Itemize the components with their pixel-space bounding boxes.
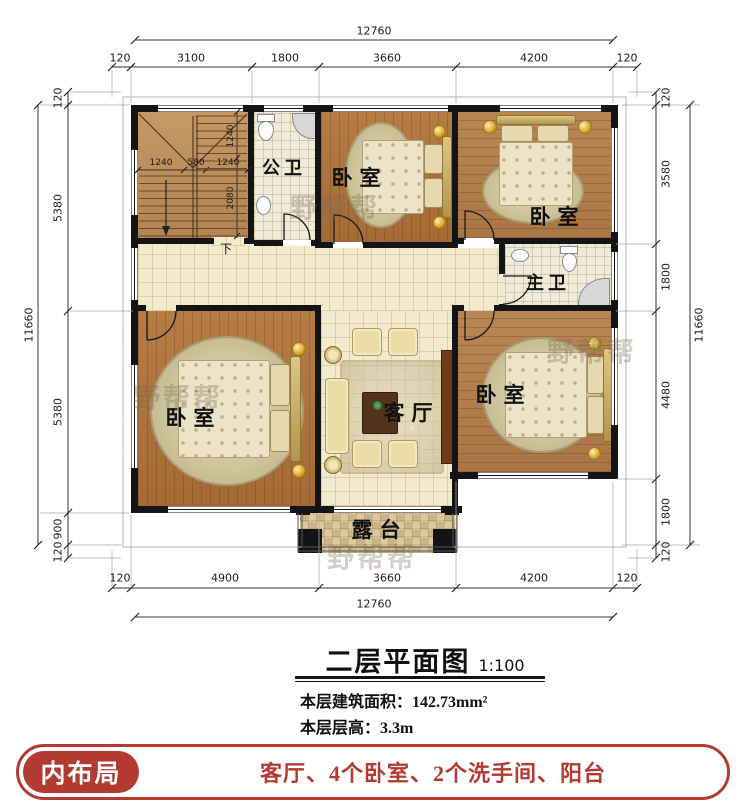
dim-label: 11660	[23, 308, 36, 343]
dim-label: 2080	[226, 187, 236, 210]
dim-label: 580	[187, 158, 204, 168]
title-underline	[295, 676, 545, 679]
note-floor-height: 本层层高：3.3m	[300, 714, 413, 738]
watermark: 野帮帮	[133, 377, 223, 416]
dim-label: 4900	[211, 572, 239, 585]
layout-banner: 内布局 客厅、4个卧室、2个洗手间、阳台	[16, 744, 730, 800]
dim-label: 1800	[660, 498, 673, 526]
plan-title: 二层平面图1:100	[285, 640, 565, 679]
plan-scale: 1:100	[478, 656, 524, 675]
dim-label: 3660	[373, 52, 401, 65]
dim-label: 900	[52, 519, 65, 540]
dim-label: 120	[617, 52, 638, 65]
watermark: 野帮帮	[547, 331, 637, 370]
dim-label: 120	[110, 572, 131, 585]
dim-label: 120	[660, 88, 673, 109]
dim-label: 3100	[177, 52, 205, 65]
dim-label: 1800	[271, 52, 299, 65]
dim-label: 120	[52, 88, 65, 109]
dim-label: 1240	[217, 158, 240, 168]
plan-linework	[0, 0, 750, 808]
plan-title-text: 二层平面图	[325, 647, 470, 677]
stair-down-label: 下	[220, 240, 232, 257]
dim-label: 3580	[660, 160, 673, 188]
dim-label: 12760	[357, 25, 392, 38]
dim-label: 12760	[357, 598, 392, 611]
dim-label: 1240	[226, 125, 236, 148]
watermark: 野帮帮	[327, 537, 417, 576]
dim-label: 120	[617, 572, 638, 585]
room-label-master-bath: 主卫	[522, 269, 570, 295]
room-label-shared-bath: 公卫	[258, 154, 306, 180]
room-label-bedroom-bottom-right: 卧室	[469, 379, 532, 409]
banner-label: 内布局	[23, 751, 139, 793]
note-floor-area: 本层建筑面积：142.73mm²	[300, 688, 487, 712]
dim-label: 4480	[660, 381, 673, 409]
dim-label: 1240	[150, 158, 173, 168]
dim-label: 4200	[520, 572, 548, 585]
room-label-bedroom-top-right: 卧室	[523, 201, 586, 231]
dim-label: 120	[52, 542, 65, 563]
dim-label: 1800	[660, 263, 673, 291]
banner-items: 客厅、4个卧室、2个洗手间、阳台	[149, 747, 717, 797]
dim-label: 5380	[52, 398, 65, 426]
dim-label: 11660	[693, 308, 706, 343]
room-label-living: 客厅	[377, 397, 440, 427]
dim-label: 4200	[520, 52, 548, 65]
title-underline-thin	[295, 681, 545, 682]
dim-label: 120	[110, 52, 131, 65]
dim-label: 120	[660, 542, 673, 563]
dim-label: 5380	[52, 194, 65, 222]
watermark: 野帮帮	[290, 187, 380, 226]
floorplan-page: 公卫 卧室 卧室 主卫 卧室 客厅 卧室 露台 下 12760 120 3100…	[0, 0, 750, 808]
